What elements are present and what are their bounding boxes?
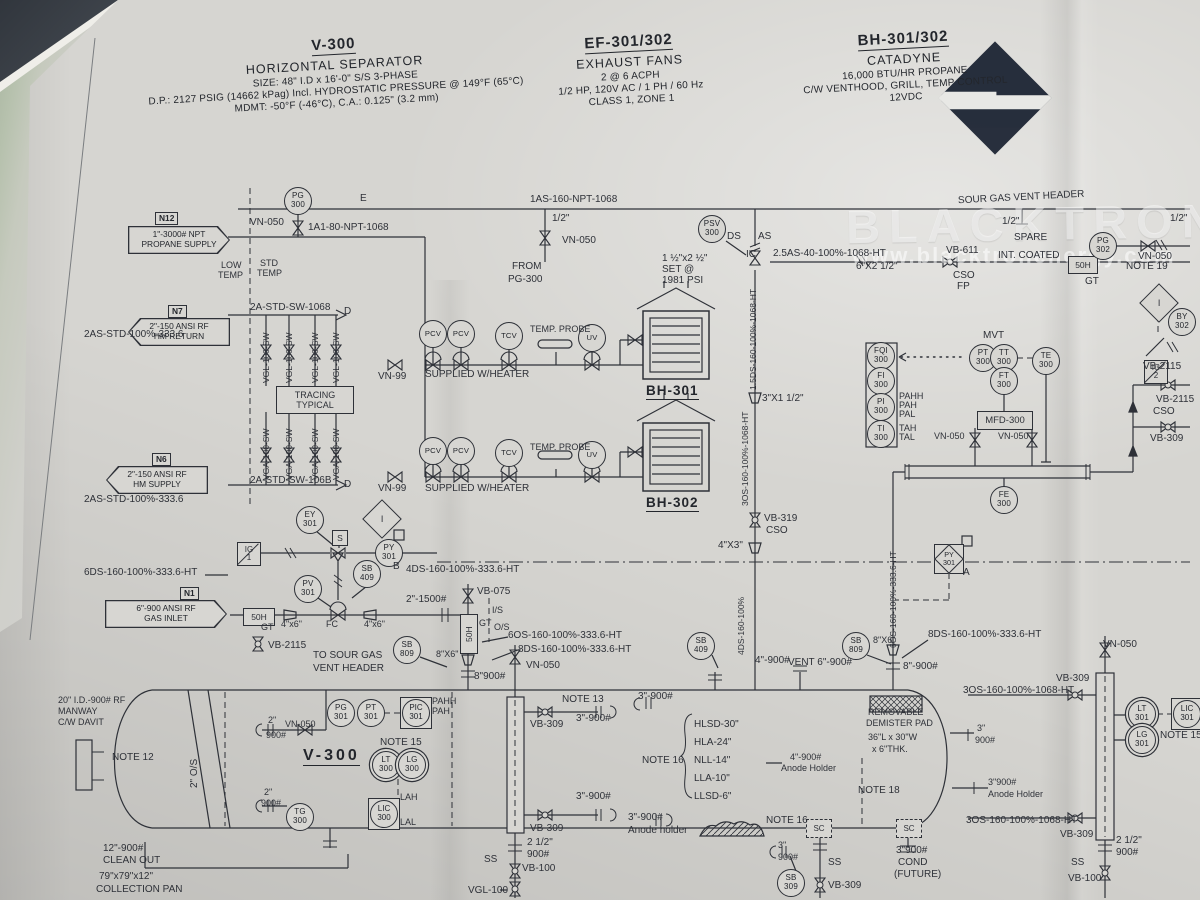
instrument-lg-300: LG300 — [398, 751, 426, 779]
diagram-label: 3"-900# — [628, 813, 663, 824]
diagram-label: (FUTURE) — [894, 870, 941, 881]
diagram-label: AS — [758, 232, 771, 243]
diagram-label: 900# — [1116, 848, 1138, 859]
diagram-label: 79"x79"x12" — [99, 872, 153, 883]
diagram-label: PAL — [899, 410, 915, 419]
diagram-label: GT — [479, 619, 492, 628]
diagram-label: VB-2115 — [1143, 362, 1181, 373]
diagram-label: GT — [261, 623, 274, 632]
diagram-label: 6"X2 1/2" — [856, 262, 898, 273]
instrument-sb-809: SB809 — [393, 636, 421, 664]
diagram-label: TEMP. PROBE — [530, 325, 590, 334]
diagram-label: DS — [727, 232, 741, 243]
diagram-label: SS — [484, 855, 497, 866]
diagram-label: CLEAN OUT — [103, 856, 160, 867]
diagram-label: VB-319 — [764, 514, 797, 525]
instrument-lg-301: LG301 — [1128, 726, 1156, 754]
inst-number: 300 — [997, 381, 1011, 390]
instrument-te-300: TE300 — [1032, 347, 1060, 375]
inst-number: 309 — [784, 883, 798, 892]
sc-box: SC — [896, 819, 922, 838]
bh-302-text: BH-302 — [646, 495, 699, 512]
strainer-50h-box: 50H — [1068, 256, 1098, 274]
diagram-label: 6OS-160-100%-333.6-HT — [889, 551, 898, 648]
diagram-label: VGL-100-SW — [332, 332, 341, 383]
diagram-label: 1A1-80-NPT-1068 — [308, 223, 389, 234]
diagram-label: 2AS-STD-100%-333.6 — [84, 495, 184, 506]
diagram-label: 6OS-160-100%-333.6-HT — [508, 631, 622, 642]
bh-302-tag: BH-302 — [646, 495, 699, 510]
strainer-50h-box: 50H — [460, 614, 478, 654]
sc-box: SC — [806, 819, 832, 838]
instrument-by-302: BY302 — [1168, 308, 1196, 336]
instrument-lic-300: LIC300 — [368, 798, 400, 830]
inst-number: 301 — [1135, 714, 1149, 723]
inst-number: 302 — [1175, 322, 1189, 331]
instrument-pg-302: PG302 — [1089, 232, 1117, 260]
diagram-label: VGA-100-SW — [332, 429, 341, 481]
diagram-label: VB-309 — [828, 881, 861, 892]
diagram-label: NOTE 12 — [112, 753, 154, 764]
valve-symbol — [388, 360, 402, 370]
diagram-label: NOTE 16 — [766, 816, 808, 827]
title-block-bh: BH-301/302 CATADYNE 16,000 BTU/HR PROPAN… — [770, 23, 1038, 110]
diagram-label: LAH — [400, 793, 418, 802]
diagram-label: VB-075 — [477, 587, 510, 598]
diagram-label: VGA-100-SW — [311, 429, 320, 481]
inst-tag: TCV — [501, 449, 517, 458]
diagram-label: HLA-24" — [694, 738, 731, 749]
inst-tag: TCV — [501, 332, 517, 341]
diagram-label: NOTE 19 — [1126, 262, 1168, 273]
diagram-label: 2" — [268, 716, 276, 725]
diagram-label: FROM — [512, 262, 541, 273]
v-300-text: V-300 — [303, 747, 360, 766]
instrument-fe-300: FE300 — [990, 486, 1018, 514]
inst-number: 301 — [364, 713, 378, 722]
bh-tag: BH-301/302 — [857, 28, 949, 52]
inst-number: 300 — [705, 229, 719, 238]
instrument-tg-300: TG300 — [286, 803, 314, 831]
inst-number: 301 — [1180, 714, 1193, 723]
diagram-label: GT — [1085, 277, 1099, 288]
inst-number: 301 — [409, 713, 422, 722]
inst-number: 300 — [379, 765, 393, 774]
flag-id-n7: N7 — [168, 305, 187, 318]
tracing-typical-box: TRACING TYPICAL — [276, 386, 354, 414]
diagram-label: VGL-100 — [468, 886, 508, 897]
diagram-label: 900# — [975, 736, 995, 745]
instrument-sb-809: SB809 — [842, 632, 870, 660]
diagram-label: VENT 6"-900# — [788, 658, 852, 669]
diagram-label: SUPPLIED W/HEATER — [425, 484, 529, 495]
diagram-label: PAH — [432, 707, 450, 716]
instrument-sb-309: SB309 — [777, 869, 805, 897]
diagram-label: PG-300 — [508, 275, 542, 286]
instrument-psv-300: PSV300 — [698, 215, 726, 243]
instrument-pic-301: PIC301 — [400, 697, 432, 729]
diagram-label: VB-2115 — [1156, 395, 1194, 406]
diagram-label: 1981 PSI — [662, 276, 703, 287]
inst-number: 300 — [874, 434, 888, 443]
diagram-label: 3OS-160-100%-1068-HT — [966, 816, 1077, 827]
diagram-label: NOTE 15 — [380, 738, 422, 749]
line-flag-n1: 6"-900 ANSI RFGAS INLET — [105, 600, 227, 628]
tracing-line2: TYPICAL — [296, 400, 334, 410]
diagram-label: TO SOUR GAS — [313, 651, 382, 662]
diagram-label: VN-99 — [378, 372, 406, 383]
inst-number: 409 — [360, 574, 374, 583]
diagram-label: LLA-10" — [694, 774, 730, 785]
inst-tag: PCV — [453, 447, 469, 456]
instrument-fi-300: FI300 — [867, 367, 895, 395]
instrument-pg-301: PG301 — [327, 699, 355, 727]
diagram-label: 4"x6" — [364, 620, 385, 629]
diagram-label: 8DS-160-100%-333.6-HT — [518, 645, 631, 656]
line-flag-n6: 2"-150 ANSI RFHM SUPPLY — [106, 466, 208, 494]
instrument-lic-301: LIC301 — [1171, 698, 1200, 730]
instrument-ft-300: FT300 — [990, 367, 1018, 395]
inst-tag: PCV — [425, 330, 441, 339]
inst-tag: UV — [587, 334, 598, 343]
diagram-label: VN-050 — [934, 432, 965, 441]
diagram-label: 20" I.D.-900# RF — [58, 696, 125, 705]
diagram-label: 8"X6" — [436, 650, 458, 659]
instrument-ey-301: EY301 — [296, 506, 324, 534]
diagram-label: FP — [957, 282, 970, 293]
diagram-label: 3"-900# — [638, 692, 673, 703]
diagram-label: Anode Holder — [781, 764, 836, 773]
diagram-label: D — [344, 307, 351, 318]
flag-id-n1: N1 — [180, 587, 199, 600]
diagram-label: 36"L x 30"W — [868, 733, 917, 742]
inst-number: 301 — [303, 520, 317, 529]
diagram-label: IC — [746, 250, 756, 261]
title-block-ef: EF-301/302 EXHAUST FANS 2 @ 6 ACPH 1/2 H… — [503, 27, 756, 113]
diagram-label: 3"900# — [988, 778, 1016, 787]
diagram-label: A — [963, 568, 970, 579]
diagram-label: 4"x6" — [281, 620, 302, 629]
diagram-label: 3"-900# — [576, 792, 611, 803]
instrument-fqi-300: FQI300 — [867, 342, 895, 370]
diagram-label: TAL — [899, 433, 915, 442]
bh-301-text: BH-301 — [646, 383, 699, 400]
diagram-label: 3"-900# — [576, 714, 611, 725]
diagram-label: SS — [828, 858, 841, 869]
diagram-label: VN-050 — [526, 661, 560, 672]
instrument-pg-300: PG300 — [284, 187, 312, 215]
inst-number: 300 — [377, 814, 390, 823]
diagram-label: 1/2" — [1002, 217, 1019, 228]
diagram-label: VB-309 — [1060, 830, 1093, 841]
diagram-label: VB-309 — [530, 720, 563, 731]
diagram-label: 3OS-160-100%-1068-HT — [963, 686, 1074, 697]
diagram-label: 2" — [264, 788, 272, 797]
inst-number: 300 — [997, 500, 1011, 509]
diagram-label: REMOVABLE — [868, 708, 923, 717]
diagram-label: 4DS-160-100%-333.6-HT — [406, 565, 519, 576]
diagram-label: LAL — [400, 818, 416, 827]
diagram-label: VB-309 — [1150, 434, 1183, 445]
diagram-label: TEMP — [218, 271, 243, 280]
diagram-label: 12"-900# — [103, 844, 143, 855]
instrument-ti-300: TI300 — [867, 420, 895, 448]
diagram-label: C/W DAVIT — [58, 718, 104, 727]
diagram-label: VN-050 — [1103, 640, 1137, 651]
diagram-label: 900# — [778, 853, 798, 862]
diagram-label: MVT — [983, 331, 1004, 342]
ef-tag: EF-301/302 — [584, 31, 673, 55]
diagram-label: VB-2115 — [268, 641, 306, 652]
diagram-label: 4"X3" — [718, 541, 743, 552]
inst-number: 300 — [997, 358, 1011, 367]
line-flag-n12: 1"-3000# NPTPROPANE SUPPLY — [128, 226, 230, 254]
instrument-pt-301: PT301 — [357, 699, 385, 727]
diagram-label: VENT HEADER — [313, 664, 384, 675]
diagram-label: x 6"THK. — [872, 745, 908, 754]
diagram-label: 2A-STD-SW-106B — [250, 476, 332, 487]
inst-number: 302 — [1096, 246, 1110, 255]
diagram-label: Anode holder — [628, 826, 688, 837]
photo-of-pid-drawing: BLACKTRON www.blacktronenergy.com V-300 … — [0, 0, 1200, 900]
inst-number: 809 — [400, 650, 414, 659]
diagram-label: 6DS-160-100%-333.6-HT — [84, 568, 197, 579]
diagram-label: 2AS-STD-100%-333.6 — [84, 330, 184, 341]
inst-tag: PCV — [425, 447, 441, 456]
diagram-label: 2" O/S — [190, 759, 201, 788]
instrument-lt-300: LT300 — [372, 751, 400, 779]
diagram-label: 2A-STD-SW-1068 — [250, 303, 330, 314]
diagram-label: 3"X1 1/2" — [762, 394, 804, 405]
diagram-label: CSO — [1153, 407, 1175, 418]
diagram-label: FC — [326, 620, 338, 629]
diagram-label: SS — [1071, 858, 1084, 869]
flag-line2: HM SUPPLY — [133, 480, 181, 490]
ig-number: 1 — [247, 554, 251, 562]
instrument-tcv: TCV — [495, 322, 523, 350]
inst-number: 809 — [849, 646, 863, 655]
diagram-label: TEMP. PROBE — [530, 443, 590, 452]
diagram-label: 1/2" — [1170, 214, 1187, 225]
inst-number: 300 — [293, 817, 307, 826]
diagram-label: 4"-900# — [790, 753, 821, 762]
inst-number: 300 — [1039, 361, 1053, 370]
diagram-label: 3" — [977, 724, 985, 733]
diagram-label: VB-309 — [530, 824, 563, 835]
diagram-label: TEMP — [257, 269, 282, 278]
diagram-label: VN-050 — [250, 218, 284, 229]
instrument-lt-301: LT301 — [1128, 700, 1156, 728]
v300-tag: V-300 — [311, 35, 356, 56]
diagram-label: NLL-14" — [694, 756, 730, 767]
mfd-300-box: MFD-300 — [977, 411, 1033, 430]
solenoid-box: S — [332, 530, 348, 546]
valve-symbol — [330, 602, 346, 620]
diagram-label: 900# — [266, 731, 286, 740]
inst-number: 300 — [874, 356, 888, 365]
inst-tag: PCV — [453, 330, 469, 339]
diagram-label: VGL-100-SW — [285, 332, 294, 383]
instrument-pcv: PCV — [419, 320, 447, 348]
diagram-label: LLSD-6" — [694, 792, 731, 803]
diagram-label: 2.5AS-40-100%-1068-HT — [773, 249, 886, 260]
diagram-label: NOTE 18 — [858, 786, 900, 797]
diagram-label: SET @ — [662, 265, 694, 276]
diagram-label: COLLECTION PAN — [96, 885, 183, 896]
inst-number: 301 — [301, 589, 315, 598]
diagram-label: NOTE 15 — [1160, 731, 1200, 742]
diagram-label: 4"-900# — [755, 656, 790, 667]
instrument-pcv: PCV — [447, 320, 475, 348]
diagram-label: VN-050 — [285, 720, 316, 729]
instrument-pi-300: PI300 — [867, 393, 895, 421]
diagram-label: 3" — [778, 841, 786, 850]
diagram-label: CSO — [766, 526, 788, 537]
diagram-label: VB-100 — [522, 864, 555, 875]
diagram-label: 3"900# — [896, 846, 927, 857]
instrument-pcv: PCV — [419, 437, 447, 465]
diagram-label: DEMISTER PAD — [866, 719, 933, 728]
instrument-py-301: PY301 — [934, 544, 964, 574]
inst-number: 301 — [943, 559, 955, 567]
diagram-label: D — [344, 480, 351, 491]
inst-number: 301 — [1135, 740, 1149, 749]
tracing-line1: TRACING — [295, 390, 336, 400]
diagram-label: 1.5DS-160-100%-1068-HT — [749, 289, 758, 390]
diagram-label: COND — [898, 858, 927, 869]
diagram-label: 1/2" — [552, 214, 569, 225]
diagram-label: Anode Holder — [988, 790, 1043, 799]
ig-number: 2 — [1154, 372, 1158, 380]
diagram-label: VGA-100-SW — [285, 429, 294, 481]
instrument-sb-409: SB409 — [353, 560, 381, 588]
inst-number: 300 — [976, 358, 990, 367]
diagram-label: 8"-900# — [903, 662, 938, 673]
diagram-label: 2 1/2" — [527, 838, 553, 849]
diagram-label: VN-050 — [562, 236, 596, 247]
instrument-sb-409: SB409 — [687, 632, 715, 660]
diagram-label: 900# — [261, 799, 281, 808]
diagram-label: HLSD-30" — [694, 720, 739, 731]
interlock-label: I — [381, 514, 384, 524]
diagram-label: INT. COATED — [998, 251, 1059, 262]
diagram-label: VN-99 — [378, 484, 406, 495]
flag-line2: PROPANE SUPPLY — [141, 240, 216, 250]
diagram-label: VGL-100-SW — [311, 332, 320, 383]
diagram-label: 2"-1500# — [406, 595, 446, 606]
diagram-label: CSO — [953, 271, 975, 282]
v-300-tag: V-300 — [303, 747, 360, 765]
diagram-label: VGA-100-SW — [262, 429, 271, 481]
inst-number: 300 — [405, 765, 419, 774]
diagram-label: B — [393, 562, 400, 573]
instrument-tcv: TCV — [495, 439, 523, 467]
instrument-pcv: PCV — [447, 437, 475, 465]
diagram-label: NOTE 16 — [642, 756, 684, 767]
diagram-label: MANWAY — [58, 707, 98, 716]
flag-line2: GAS INLET — [144, 614, 188, 624]
flag-id-n12: N12 — [155, 212, 178, 225]
flag-id-n6: N6 — [152, 453, 171, 466]
inst-number: 300 — [291, 201, 305, 210]
diagram-label: VB-309 — [1056, 674, 1089, 685]
diagram-label: 4DS-160-100% — [737, 597, 746, 655]
diagram-label: VN-050 — [998, 432, 1029, 441]
diagram-label: SUPPLIED W/HEATER — [425, 370, 529, 381]
diagram-label: 900# — [527, 850, 549, 861]
diagram-label: VGL-100-SW — [262, 332, 271, 383]
instrument-pv-301: PV301 — [294, 575, 322, 603]
diagram-label: 3OS-160-100%-1068-HT — [741, 412, 750, 507]
diagram-label: 2 1/2" — [1116, 836, 1142, 847]
diagram-label: E — [360, 194, 367, 205]
diagram-label: 8"900# — [474, 672, 505, 683]
ig-1-box: IG1 — [237, 542, 261, 566]
diagram-label: 1AS-160-NPT-1068 — [530, 195, 617, 206]
diagram-label: 8DS-160-100%-333.6-HT — [928, 630, 1041, 641]
diagram-label: VB-611 — [946, 246, 979, 257]
diagram-label: SPARE — [1014, 233, 1047, 244]
diagram-label: I/S — [492, 606, 503, 615]
bh-301-tag: BH-301 — [646, 383, 699, 398]
inst-number: 300 — [874, 407, 888, 416]
valve-symbol — [253, 637, 263, 651]
diagram-label: VB-100 — [1068, 874, 1101, 885]
inst-number: 301 — [334, 713, 348, 722]
inst-number: 409 — [694, 646, 708, 655]
diagram-label: 1 ½"x2 ½" — [662, 254, 707, 265]
diagram-label: NOTE 13 — [562, 695, 604, 706]
interlock-label: I — [1158, 298, 1161, 308]
valve-symbol — [388, 472, 402, 482]
inst-number: 300 — [874, 381, 888, 390]
